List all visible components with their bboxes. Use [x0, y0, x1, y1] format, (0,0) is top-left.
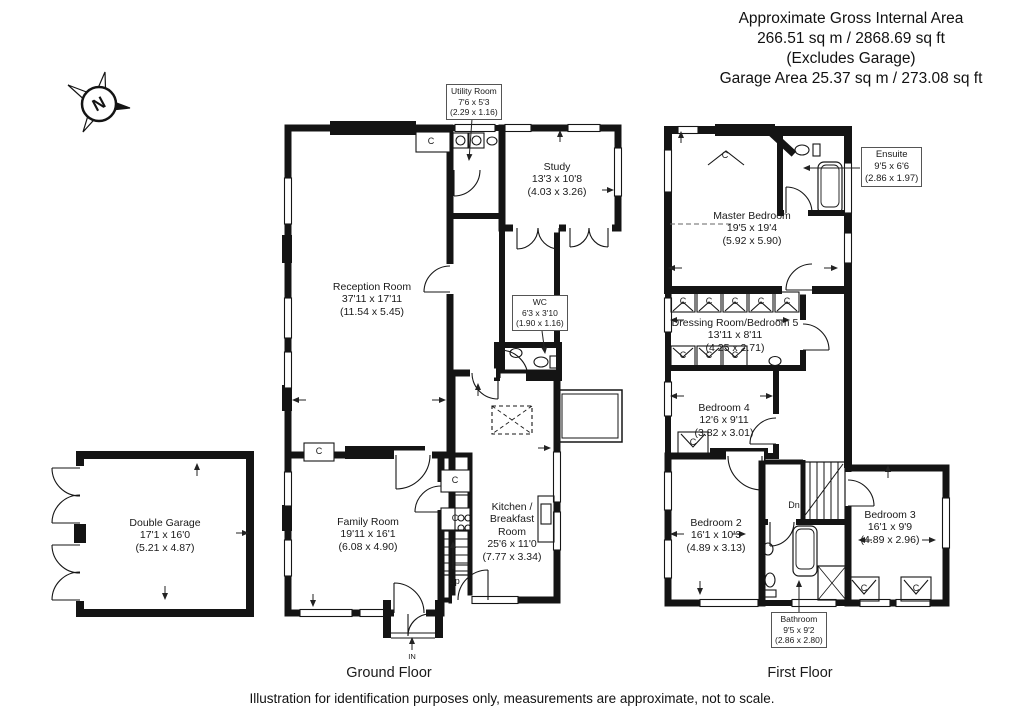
- room-label-reception: Reception Room 37'11 x 17'11 (11.54 x 5.…: [292, 281, 452, 318]
- room-label-study: Study 13'3 x 10'8 (4.03 x 3.26): [505, 161, 609, 198]
- cupboard-label: C: [780, 296, 794, 306]
- dimension-arrows: [165, 119, 935, 650]
- cupboard-label: C: [728, 296, 742, 306]
- room-label-family: Family Room 19'11 x 16'1 (6.08 x 4.90): [288, 516, 448, 553]
- room-label-garage: Double Garage 17'1 x 16'0 (5.21 x 4.87): [85, 517, 245, 554]
- cupboard-label: C: [448, 475, 462, 485]
- compass-icon: N: [68, 72, 130, 132]
- cupboard-label: C: [909, 583, 923, 593]
- cupboard-label: C: [448, 513, 462, 523]
- area-summary-line: Garage Area 25.37 sq m / 273.08 sq ft: [692, 69, 1010, 89]
- cupboard-label: C: [686, 437, 700, 447]
- disclaimer-text: Illustration for identification purposes…: [0, 691, 1024, 706]
- room-label-bedroom2: Bedroom 2 16'1 x 10'3 (4.89 x 3.13): [658, 517, 774, 554]
- callout-ensuite: Ensuite 9'5 x 6'6 (2.86 x 1.97): [861, 147, 922, 187]
- cupboard-label: C: [424, 136, 438, 146]
- callout-wc: WC 6'3 x 3'10 (1.90 x 1.16): [512, 295, 568, 331]
- cupboard-label: C: [676, 350, 690, 360]
- area-summary: Approximate Gross Internal Area 266.51 s…: [692, 9, 1010, 89]
- cupboard-label: C: [312, 446, 326, 456]
- room-label-bedroom4: Bedroom 4 12'6 x 9'11 (3.82 x 3.01): [666, 402, 782, 439]
- entrance-label: IN: [402, 652, 422, 661]
- cupboard-label: C: [718, 150, 732, 160]
- area-summary-line: (Excludes Garage): [692, 49, 1010, 69]
- room-label-bedroom3: Bedroom 3 16'1 x 9'9 (4.89 x 2.96): [832, 509, 948, 546]
- ground-floor-title: Ground Floor: [309, 665, 469, 681]
- cupboard-label: C: [728, 350, 742, 360]
- first-floor-title: First Floor: [720, 665, 880, 681]
- cupboard-label: C: [702, 296, 716, 306]
- room-label-kitchen: Kitchen / Breakfast Room 25'6 x 11'0 (7.…: [480, 501, 544, 563]
- area-summary-line: 266.51 sq m / 2868.69 sq ft: [692, 29, 1010, 49]
- cupboard-label: C: [702, 350, 716, 360]
- stairs-up-label: Up: [444, 576, 464, 586]
- stairs-down-label: Dn: [784, 500, 804, 510]
- room-label-dressing: Dressing Room/Bedroom 5 13'11 x 8'11 (4.…: [660, 317, 810, 354]
- callout-bathroom: Bathroom 9'5 x 9'2 (2.86 x 2.80): [771, 612, 827, 648]
- callout-utility: Utility Room 7'6 x 5'3 (2.29 x 1.16): [446, 84, 502, 120]
- floorplan-drawing: N: [0, 0, 1024, 724]
- room-label-master-bedroom: Master Bedroom 19'5 x 19'4 (5.92 x 5.90): [672, 210, 832, 247]
- cupboard-label: C: [676, 296, 690, 306]
- floorplan-page: N Approximate Gross Internal Area 266.51…: [0, 0, 1024, 724]
- area-summary-line: Approximate Gross Internal Area: [692, 9, 1010, 29]
- cupboard-label: C: [754, 296, 768, 306]
- cupboard-label: C: [857, 583, 871, 593]
